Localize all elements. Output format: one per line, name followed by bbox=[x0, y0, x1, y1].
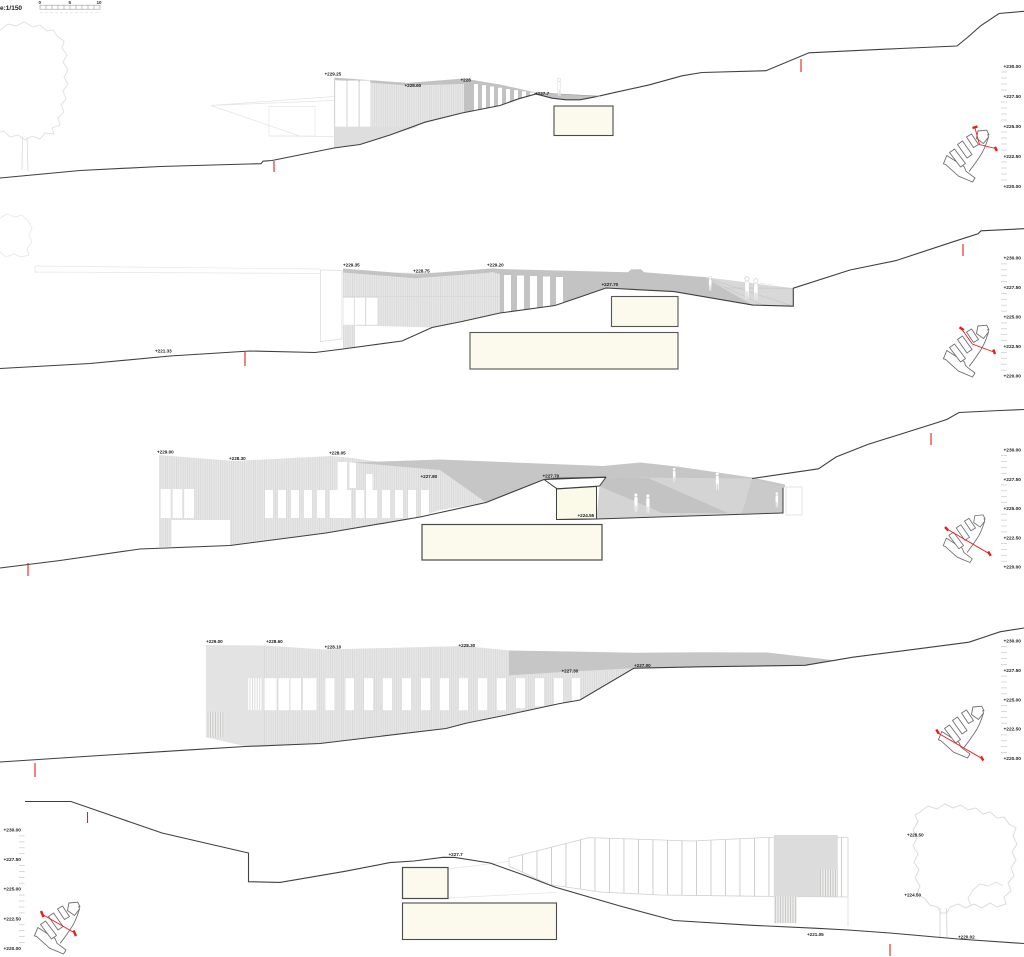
svg-text:+222.50: +222.50 bbox=[1004, 727, 1022, 733]
svg-text:5: 5 bbox=[69, 0, 72, 5]
svg-text:+230.00: +230.00 bbox=[1004, 256, 1022, 262]
svg-text:+227.50: +227.50 bbox=[1004, 94, 1022, 100]
svg-text:+227.80: +227.80 bbox=[421, 474, 438, 479]
svg-text:+229.20: +229.20 bbox=[487, 263, 504, 268]
svg-text:+228.30: +228.30 bbox=[229, 456, 246, 461]
svg-text:+229.00: +229.00 bbox=[206, 639, 223, 644]
svg-text:+230.00: +230.00 bbox=[1004, 639, 1022, 645]
svg-text:+228.30: +228.30 bbox=[459, 643, 476, 648]
svg-text:+225.00: +225.00 bbox=[1004, 697, 1022, 703]
svg-text:+225.00: +225.00 bbox=[1004, 315, 1022, 321]
svg-text:+225.00: +225.00 bbox=[4, 887, 22, 893]
svg-text:+224.55: +224.55 bbox=[578, 513, 595, 518]
svg-text:+227.50: +227.50 bbox=[4, 857, 22, 863]
svg-text:+228.10: +228.10 bbox=[325, 645, 342, 650]
svg-text:+229.35: +229.35 bbox=[343, 263, 360, 268]
svg-text:+227.7: +227.7 bbox=[535, 91, 550, 96]
svg-text:+222.50: +222.50 bbox=[1004, 535, 1022, 541]
svg-text:+228.60: +228.60 bbox=[405, 83, 422, 88]
svg-text:+230.00: +230.00 bbox=[1004, 64, 1022, 70]
svg-text:10: 10 bbox=[97, 0, 103, 5]
svg-text:+228: +228 bbox=[461, 78, 472, 83]
svg-text:+220.00: +220.00 bbox=[1004, 184, 1022, 190]
svg-text:+221.05: +221.05 bbox=[807, 932, 824, 937]
svg-text:e:1/150: e:1/150 bbox=[0, 5, 22, 12]
svg-text:+222.50: +222.50 bbox=[1004, 154, 1022, 160]
svg-text:+224.50: +224.50 bbox=[904, 893, 921, 898]
svg-text:+229.25: +229.25 bbox=[325, 72, 342, 77]
svg-text:+220.02: +220.02 bbox=[958, 935, 975, 940]
svg-text:0: 0 bbox=[39, 0, 42, 5]
svg-text:+220.00: +220.00 bbox=[4, 946, 22, 952]
svg-text:+228.50: +228.50 bbox=[907, 833, 924, 838]
svg-text:+225.00: +225.00 bbox=[1004, 506, 1022, 512]
svg-text:+230.00: +230.00 bbox=[4, 828, 22, 834]
svg-text:+228.75: +228.75 bbox=[413, 269, 430, 274]
svg-text:+227.30: +227.30 bbox=[562, 669, 579, 674]
svg-text:+225.00: +225.00 bbox=[1004, 124, 1022, 130]
svg-text:+222.50: +222.50 bbox=[1004, 344, 1022, 350]
svg-text:+221.33: +221.33 bbox=[155, 349, 172, 354]
svg-text:+228.60: +228.60 bbox=[266, 639, 283, 644]
svg-text:+227.50: +227.50 bbox=[1004, 477, 1022, 483]
svg-text:+227.50: +227.50 bbox=[1004, 285, 1022, 291]
svg-text:+227.50: +227.50 bbox=[1004, 668, 1022, 674]
svg-text:+220.00: +220.00 bbox=[1004, 374, 1022, 380]
svg-text:+227.70: +227.70 bbox=[602, 282, 619, 287]
svg-text:+228.05: +228.05 bbox=[329, 451, 346, 456]
svg-text:+230.00: +230.00 bbox=[1004, 448, 1022, 454]
svg-text:+229.00: +229.00 bbox=[157, 450, 174, 455]
svg-text:+220.00: +220.00 bbox=[1004, 565, 1022, 571]
svg-text:+227.00: +227.00 bbox=[634, 663, 651, 668]
svg-text:+220.00: +220.00 bbox=[1004, 756, 1022, 762]
svg-text:+227.7: +227.7 bbox=[449, 852, 464, 857]
svg-text:+222.50: +222.50 bbox=[4, 916, 22, 922]
svg-text:+227.70: +227.70 bbox=[543, 474, 560, 479]
